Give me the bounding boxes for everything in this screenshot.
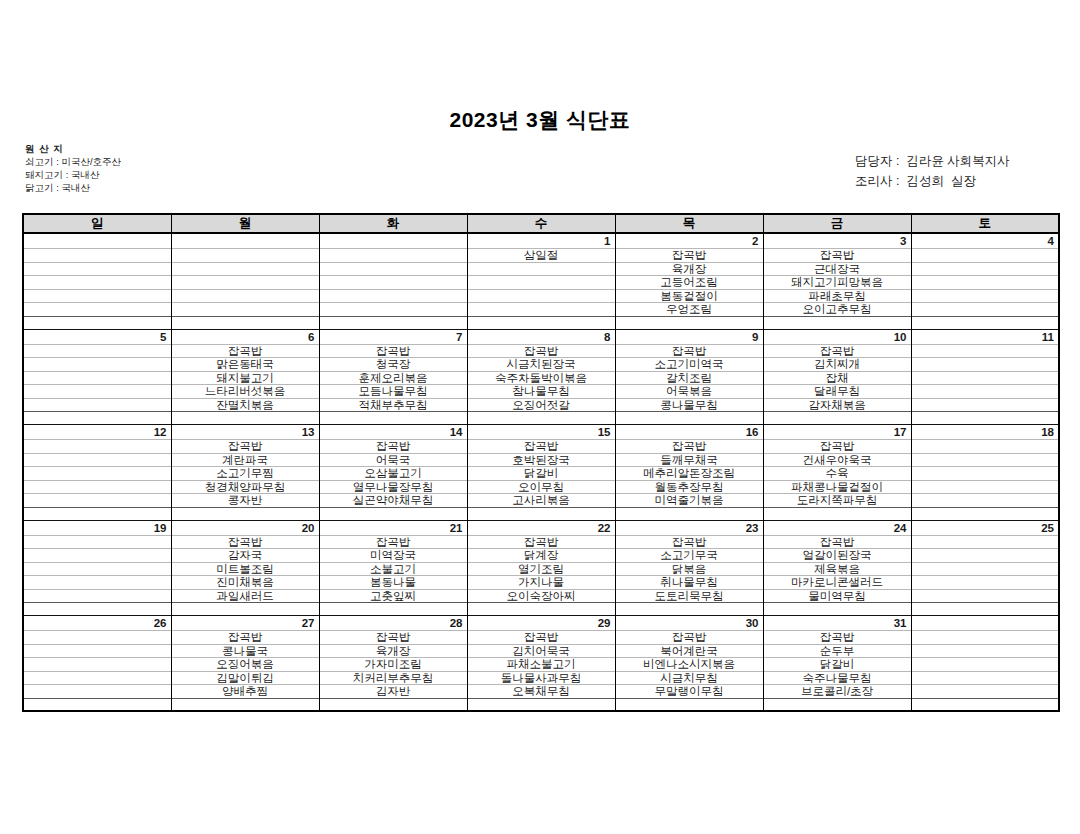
day-header-fri: 금 xyxy=(763,214,911,233)
menu-cell xyxy=(911,535,1059,549)
manager-line: 담당자 : 김라윤 사회복지사 xyxy=(855,151,1010,171)
menu-cell: 청국장 xyxy=(319,358,467,372)
menu-row: 잡곡밥잡곡밥잡곡밥잡곡밥잡곡밥 xyxy=(23,631,1059,645)
menu-cell: 가지나물 xyxy=(467,576,615,590)
menu-row: 미트볼조림소불고기열기조림닭볶음제육볶음 xyxy=(23,562,1059,576)
week-block-3: 12131415161718잡곡밥잡곡밥잡곡밥잡곡밥잡곡밥계란파국어묵국호박된장… xyxy=(23,425,1059,521)
menu-cell: 숙주나물무침 xyxy=(763,671,911,685)
menu-cell: 소불고기 xyxy=(319,562,467,576)
spacer-cell xyxy=(615,603,763,616)
week-spacer-row xyxy=(23,698,1059,711)
menu-cell: 근대장국 xyxy=(763,262,911,276)
menu-cell: 육개장 xyxy=(319,644,467,658)
menu-cell xyxy=(171,249,319,263)
menu-row: 과일새러드고춧잎찌오이숙장아찌도토리묵무침물미역무침 xyxy=(23,589,1059,603)
menu-cell: 돼지고기피망볶음 xyxy=(763,276,911,290)
menu-cell: 파채소불고기 xyxy=(467,658,615,672)
spacer-cell xyxy=(23,507,171,520)
menu-cell: 오이무침 xyxy=(467,480,615,494)
menu-cell: 청경채양파무침 xyxy=(171,480,319,494)
menu-cell: 소고기미역국 xyxy=(615,358,763,372)
date-cell: 26 xyxy=(23,616,171,631)
menu-cell: 잡곡밥 xyxy=(467,535,615,549)
spacer-cell xyxy=(171,507,319,520)
menu-cell: 김말이튀김 xyxy=(171,671,319,685)
menu-cell xyxy=(23,262,171,276)
menu-cell xyxy=(911,562,1059,576)
day-header-sat: 토 xyxy=(911,214,1059,233)
menu-cell xyxy=(23,671,171,685)
menu-cell: 잡곡밥 xyxy=(319,631,467,645)
menu-row: 육개장근대장국 xyxy=(23,262,1059,276)
menu-cell xyxy=(467,276,615,290)
menu-cell xyxy=(23,398,171,412)
menu-cell xyxy=(911,276,1059,290)
day-header-tue: 화 xyxy=(319,214,467,233)
menu-cell: 모듬나물무침 xyxy=(319,385,467,399)
menu-row: 고등어조림돼지고기피망볶음 xyxy=(23,276,1059,290)
menu-cell: 오징어젓갈 xyxy=(467,398,615,412)
menu-cell xyxy=(911,658,1059,672)
menu-cell: 미트볼조림 xyxy=(171,562,319,576)
menu-cell: 돼지불고기 xyxy=(171,371,319,385)
menu-cell: 잡곡밥 xyxy=(319,440,467,454)
date-cell: 29 xyxy=(467,616,615,631)
menu-row: 맑은동태국청국장시금치된장국소고기미역국김치찌개 xyxy=(23,358,1059,372)
menu-cell: 계란파국 xyxy=(171,453,319,467)
menu-cell: 닭갈비 xyxy=(763,658,911,672)
menu-cell xyxy=(911,371,1059,385)
menu-cell xyxy=(23,480,171,494)
menu-row: 잡곡밥잡곡밥잡곡밥잡곡밥잡곡밥 xyxy=(23,535,1059,549)
menu-cell: 잡채 xyxy=(763,371,911,385)
week-block-5: 262728293031잡곡밥잡곡밥잡곡밥잡곡밥잡곡밥콩나물국육개장김치어묵국북… xyxy=(23,616,1059,712)
spacer-cell xyxy=(467,507,615,520)
date-cell: 1 xyxy=(467,233,615,249)
date-row: 262728293031 xyxy=(23,616,1059,631)
spacer-cell xyxy=(467,698,615,711)
menu-cell: 마카로니콘샐러드 xyxy=(763,576,911,590)
menu-cell: 치커리부추무침 xyxy=(319,671,467,685)
spacer-cell xyxy=(615,507,763,520)
spacer-cell xyxy=(615,316,763,329)
date-cell: 19 xyxy=(23,520,171,535)
menu-cell: 김치어묵국 xyxy=(467,644,615,658)
spacer-cell xyxy=(763,507,911,520)
menu-row: 청경채양파무침열무나물장무침오이무침월동추장무침파채콩나물겉절이 xyxy=(23,480,1059,494)
menu-cell: 오이고추무침 xyxy=(763,303,911,317)
staff-info-block: 담당자 : 김라윤 사회복지사 조리사 : 김성희 실장 xyxy=(855,151,1010,191)
menu-cell: 참나물무침 xyxy=(467,385,615,399)
menu-cell xyxy=(23,453,171,467)
menu-cell: 잡곡밥 xyxy=(171,440,319,454)
menu-cell xyxy=(911,576,1059,590)
menu-cell: 잡곡밥 xyxy=(319,535,467,549)
menu-cell xyxy=(911,358,1059,372)
menu-cell: 잡곡밥 xyxy=(171,344,319,358)
menu-cell xyxy=(23,467,171,481)
menu-cell: 건새우야욱국 xyxy=(763,453,911,467)
menu-cell xyxy=(911,303,1059,317)
date-cell: 28 xyxy=(319,616,467,631)
menu-cell: 가자미조림 xyxy=(319,658,467,672)
week-block-2: 567891011잡곡밥잡곡밥잡곡밥잡곡밥잡곡밥맑은동태국청국장시금치된장국소고… xyxy=(23,329,1059,425)
menu-row: 진미채볶음봄동나물가지나물취나물무침마카로니콘샐러드 xyxy=(23,576,1059,590)
menu-cell: 잡곡밥 xyxy=(763,249,911,263)
menu-cell xyxy=(23,344,171,358)
menu-row: 감자국미역장국닭계장소고기무국얼갈이된장국 xyxy=(23,549,1059,563)
menu-cell xyxy=(319,262,467,276)
menu-cell xyxy=(911,453,1059,467)
date-cell xyxy=(319,233,467,249)
menu-row: 계란파국어묵국호박된장국들깨무채국건새우야욱국 xyxy=(23,453,1059,467)
menu-cell xyxy=(911,344,1059,358)
menu-row: 김말이튀김치커리부추무침돌나물사과무침시금치무침숙주나물무침 xyxy=(23,671,1059,685)
menu-cell: 취나물무침 xyxy=(615,576,763,590)
menu-cell: 잡곡밥 xyxy=(171,535,319,549)
menu-cell: 삼일절 xyxy=(467,249,615,263)
week-spacer-row xyxy=(23,412,1059,425)
menu-cell: 고사리볶음 xyxy=(467,494,615,508)
menu-row: 우엉조림오이고추무침 xyxy=(23,303,1059,317)
menu-cell xyxy=(911,549,1059,563)
spacer-cell xyxy=(23,698,171,711)
date-cell xyxy=(171,233,319,249)
menu-cell xyxy=(467,289,615,303)
date-row: 1234 xyxy=(23,233,1059,249)
date-cell: 12 xyxy=(23,425,171,440)
menu-cell xyxy=(171,262,319,276)
menu-cell xyxy=(23,549,171,563)
menu-cell: 적채부추무침 xyxy=(319,398,467,412)
date-cell: 5 xyxy=(23,329,171,344)
spacer-cell xyxy=(911,507,1059,520)
menu-cell: 들깨무채국 xyxy=(615,453,763,467)
spacer-cell xyxy=(467,412,615,425)
date-cell: 27 xyxy=(171,616,319,631)
menu-cell: 잡곡밥 xyxy=(171,631,319,645)
date-cell: 18 xyxy=(911,425,1059,440)
menu-cell xyxy=(467,303,615,317)
menu-cell: 잡곡밥 xyxy=(467,344,615,358)
menu-cell: 훈제오리볶음 xyxy=(319,371,467,385)
spacer-cell xyxy=(319,507,467,520)
menu-cell: 감자국 xyxy=(171,549,319,563)
menu-cell xyxy=(911,631,1059,645)
date-cell: 2 xyxy=(615,233,763,249)
menu-cell xyxy=(23,494,171,508)
menu-cell xyxy=(911,589,1059,603)
menu-cell: 파래초무침 xyxy=(763,289,911,303)
menu-row: 오징어볶음가자미조림파채소불고기비엔나소시지볶음닭갈비 xyxy=(23,658,1059,672)
menu-cell xyxy=(319,303,467,317)
spacer-cell xyxy=(467,316,615,329)
menu-cell xyxy=(911,467,1059,481)
menu-cell: 잡곡밥 xyxy=(763,344,911,358)
menu-cell: 고춧잎찌 xyxy=(319,589,467,603)
spacer-cell xyxy=(23,603,171,616)
date-cell: 17 xyxy=(763,425,911,440)
menu-cell xyxy=(23,303,171,317)
spacer-cell xyxy=(615,412,763,425)
spacer-cell xyxy=(763,412,911,425)
menu-row: 삼일절잡곡밥잡곡밥 xyxy=(23,249,1059,263)
menu-cell: 파채콩나물겉절이 xyxy=(763,480,911,494)
spacer-cell xyxy=(171,316,319,329)
menu-cell xyxy=(23,685,171,699)
menu-cell xyxy=(23,249,171,263)
menu-row: 잔멸치볶음적채부추무침오징어젓갈콩나물무침감자채볶음 xyxy=(23,398,1059,412)
menu-cell xyxy=(23,440,171,454)
menu-cell xyxy=(23,658,171,672)
menu-cell: 육개장 xyxy=(615,262,763,276)
menu-cell xyxy=(911,685,1059,699)
origin-heading: 원 산 지 xyxy=(25,142,121,155)
menu-cell: 잡곡밥 xyxy=(467,440,615,454)
date-cell: 6 xyxy=(171,329,319,344)
menu-cell: 김치찌개 xyxy=(763,358,911,372)
menu-cell: 잔멸치볶음 xyxy=(171,398,319,412)
date-cell: 20 xyxy=(171,520,319,535)
menu-row: 잡곡밥잡곡밥잡곡밥잡곡밥잡곡밥 xyxy=(23,440,1059,454)
origin-line-beef: 쇠고기 : 미국산/호주산 xyxy=(25,155,121,168)
date-row: 567891011 xyxy=(23,329,1059,344)
date-cell: 8 xyxy=(467,329,615,344)
spacer-cell xyxy=(911,316,1059,329)
menu-cell: 진미채볶음 xyxy=(171,576,319,590)
menu-cell xyxy=(911,671,1059,685)
menu-cell: 오복채무침 xyxy=(467,685,615,699)
menu-row: 콩나물국육개장김치어묵국북어계란국순두부 xyxy=(23,644,1059,658)
menu-cell: 감자채볶음 xyxy=(763,398,911,412)
week-spacer-row xyxy=(23,603,1059,616)
meal-calendar-table: 일 월 화 수 목 금 토 1234삼일절잡곡밥잡곡밥육개장근대장국고등어조림돼… xyxy=(22,213,1060,712)
menu-cell: 잡곡밥 xyxy=(615,535,763,549)
date-cell: 3 xyxy=(763,233,911,249)
date-cell: 9 xyxy=(615,329,763,344)
date-row: 19202122232425 xyxy=(23,520,1059,535)
date-cell: 25 xyxy=(911,520,1059,535)
spacer-cell xyxy=(319,412,467,425)
meal-plan-document: 2023년 3월 식단표 원 산 지 쇠고기 : 미국산/호주산 돼지고기 : … xyxy=(0,0,1080,834)
menu-cell xyxy=(23,535,171,549)
day-header-wed: 수 xyxy=(467,214,615,233)
spacer-cell xyxy=(911,603,1059,616)
menu-cell: 소고기무찜 xyxy=(171,467,319,481)
menu-row: 콩자반실곤약야채무침고사리볶음미역줄기볶음도라지쪽파무침 xyxy=(23,494,1059,508)
menu-cell: 잡곡밥 xyxy=(615,344,763,358)
menu-cell: 어묵볶음 xyxy=(615,385,763,399)
menu-cell: 닭갈비 xyxy=(467,467,615,481)
menu-cell xyxy=(23,644,171,658)
menu-cell: 소고기무국 xyxy=(615,549,763,563)
menu-cell xyxy=(319,276,467,290)
menu-cell xyxy=(23,371,171,385)
menu-cell: 얼갈이된장국 xyxy=(763,549,911,563)
spacer-cell xyxy=(23,412,171,425)
menu-row: 느타리버섯볶음모듬나물무침참나물무침어묵볶음달래무침 xyxy=(23,385,1059,399)
date-cell: 24 xyxy=(763,520,911,535)
menu-cell xyxy=(911,289,1059,303)
menu-cell: 수육 xyxy=(763,467,911,481)
menu-cell: 닭볶음 xyxy=(615,562,763,576)
menu-cell: 오삼불고기 xyxy=(319,467,467,481)
origin-line-chicken: 닭고기 : 국내산 xyxy=(25,181,121,194)
origin-info-block: 원 산 지 쇠고기 : 미국산/호주산 돼지고기 : 국내산 닭고기 : 국내산 xyxy=(25,142,121,194)
menu-cell: 열기조림 xyxy=(467,562,615,576)
spacer-cell xyxy=(319,698,467,711)
spacer-cell xyxy=(911,698,1059,711)
menu-cell: 북어계란국 xyxy=(615,644,763,658)
date-cell: 4 xyxy=(911,233,1059,249)
menu-cell: 느타리버섯볶음 xyxy=(171,385,319,399)
day-header-mon: 월 xyxy=(171,214,319,233)
menu-cell xyxy=(911,385,1059,399)
menu-cell: 어묵국 xyxy=(319,453,467,467)
date-cell: 10 xyxy=(763,329,911,344)
menu-cell: 시금치된장국 xyxy=(467,358,615,372)
menu-cell: 콩자반 xyxy=(171,494,319,508)
menu-cell: 비엔나소시지볶음 xyxy=(615,658,763,672)
date-cell: 23 xyxy=(615,520,763,535)
spacer-cell xyxy=(467,603,615,616)
date-row: 12131415161718 xyxy=(23,425,1059,440)
week-block-1: 1234삼일절잡곡밥잡곡밥육개장근대장국고등어조림돼지고기피망볶음봄동겉절이파래… xyxy=(23,233,1059,329)
menu-cell xyxy=(911,494,1059,508)
menu-row: 돼지불고기훈제오리볶음숙주차돌박이볶음갈치조림잡채 xyxy=(23,371,1059,385)
menu-cell xyxy=(171,276,319,290)
menu-cell: 브로콜리/초장 xyxy=(763,685,911,699)
menu-cell: 도라지쪽파무침 xyxy=(763,494,911,508)
day-header-sun: 일 xyxy=(23,214,171,233)
spacer-cell xyxy=(319,603,467,616)
menu-cell: 오징어볶음 xyxy=(171,658,319,672)
spacer-cell xyxy=(763,698,911,711)
date-cell xyxy=(911,616,1059,631)
menu-cell xyxy=(467,262,615,276)
menu-cell xyxy=(23,276,171,290)
menu-cell: 고등어조림 xyxy=(615,276,763,290)
menu-cell xyxy=(911,644,1059,658)
menu-cell: 달래무침 xyxy=(763,385,911,399)
menu-cell: 닭계장 xyxy=(467,549,615,563)
week-spacer-row xyxy=(23,507,1059,520)
menu-cell: 잡곡밥 xyxy=(763,535,911,549)
date-cell: 22 xyxy=(467,520,615,535)
menu-cell: 잡곡밥 xyxy=(467,631,615,645)
origin-line-pork: 돼지고기 : 국내산 xyxy=(25,168,121,181)
menu-cell xyxy=(23,562,171,576)
day-header-thu: 목 xyxy=(615,214,763,233)
menu-cell: 열무나물장무침 xyxy=(319,480,467,494)
week-spacer-row xyxy=(23,316,1059,329)
menu-cell: 메추리알돈장조림 xyxy=(615,467,763,481)
week-block-4: 19202122232425잡곡밥잡곡밥잡곡밥잡곡밥잡곡밥감자국미역장국닭계장소… xyxy=(23,520,1059,616)
menu-cell: 물미역무침 xyxy=(763,589,911,603)
menu-cell xyxy=(23,358,171,372)
menu-cell: 미역줄기볶음 xyxy=(615,494,763,508)
menu-cell: 갈치조림 xyxy=(615,371,763,385)
menu-cell xyxy=(911,249,1059,263)
menu-cell: 무말랭이무침 xyxy=(615,685,763,699)
menu-cell: 제육볶음 xyxy=(763,562,911,576)
menu-cell: 잡곡밥 xyxy=(615,631,763,645)
menu-cell xyxy=(171,289,319,303)
menu-row: 잡곡밥잡곡밥잡곡밥잡곡밥잡곡밥 xyxy=(23,344,1059,358)
menu-cell: 잡곡밥 xyxy=(763,440,911,454)
spacer-cell xyxy=(763,316,911,329)
date-cell: 14 xyxy=(319,425,467,440)
spacer-cell xyxy=(319,316,467,329)
menu-cell: 도토리묵무침 xyxy=(615,589,763,603)
menu-cell xyxy=(911,480,1059,494)
menu-cell: 봄동겉절이 xyxy=(615,289,763,303)
menu-cell: 우엉조림 xyxy=(615,303,763,317)
menu-cell: 실곤약야채무침 xyxy=(319,494,467,508)
menu-cell xyxy=(23,385,171,399)
menu-cell: 시금치무침 xyxy=(615,671,763,685)
menu-row: 양배추찜김자반오복채무침무말랭이무침브로콜리/초장 xyxy=(23,685,1059,699)
spacer-cell xyxy=(763,603,911,616)
menu-cell: 봄동나물 xyxy=(319,576,467,590)
cook-line: 조리사 : 김성희 실장 xyxy=(855,171,1010,191)
date-cell xyxy=(23,233,171,249)
menu-cell: 돌나물사과무침 xyxy=(467,671,615,685)
date-cell: 13 xyxy=(171,425,319,440)
menu-cell xyxy=(911,440,1059,454)
spacer-cell xyxy=(911,412,1059,425)
menu-cell: 잡곡밥 xyxy=(615,440,763,454)
date-cell: 21 xyxy=(319,520,467,535)
menu-cell: 양배추찜 xyxy=(171,685,319,699)
menu-cell xyxy=(171,303,319,317)
menu-cell: 잡곡밥 xyxy=(615,249,763,263)
menu-cell: 미역장국 xyxy=(319,549,467,563)
date-cell: 11 xyxy=(911,329,1059,344)
menu-row: 소고기무찜오삼불고기닭갈비메추리알돈장조림수육 xyxy=(23,467,1059,481)
menu-cell: 김자반 xyxy=(319,685,467,699)
spacer-cell xyxy=(171,698,319,711)
date-cell: 31 xyxy=(763,616,911,631)
menu-cell xyxy=(23,631,171,645)
spacer-cell xyxy=(171,603,319,616)
menu-cell xyxy=(23,576,171,590)
menu-cell xyxy=(911,262,1059,276)
menu-cell: 오이숙장아찌 xyxy=(467,589,615,603)
date-cell: 15 xyxy=(467,425,615,440)
menu-cell: 숙주차돌박이볶음 xyxy=(467,371,615,385)
date-cell: 7 xyxy=(319,329,467,344)
menu-cell: 콩나물무침 xyxy=(615,398,763,412)
menu-cell: 월동추장무침 xyxy=(615,480,763,494)
spacer-cell xyxy=(615,698,763,711)
page-title: 2023년 3월 식단표 xyxy=(0,106,1080,134)
spacer-cell xyxy=(23,316,171,329)
spacer-cell xyxy=(171,412,319,425)
menu-cell: 잡곡밥 xyxy=(763,631,911,645)
menu-cell: 잡곡밥 xyxy=(319,344,467,358)
menu-cell xyxy=(911,398,1059,412)
menu-cell xyxy=(23,589,171,603)
menu-cell: 호박된장국 xyxy=(467,453,615,467)
menu-cell xyxy=(319,289,467,303)
menu-cell: 맑은동태국 xyxy=(171,358,319,372)
day-header-row: 일 월 화 수 목 금 토 xyxy=(23,214,1059,233)
menu-cell xyxy=(319,249,467,263)
date-cell: 16 xyxy=(615,425,763,440)
menu-cell: 과일새러드 xyxy=(171,589,319,603)
date-cell: 30 xyxy=(615,616,763,631)
